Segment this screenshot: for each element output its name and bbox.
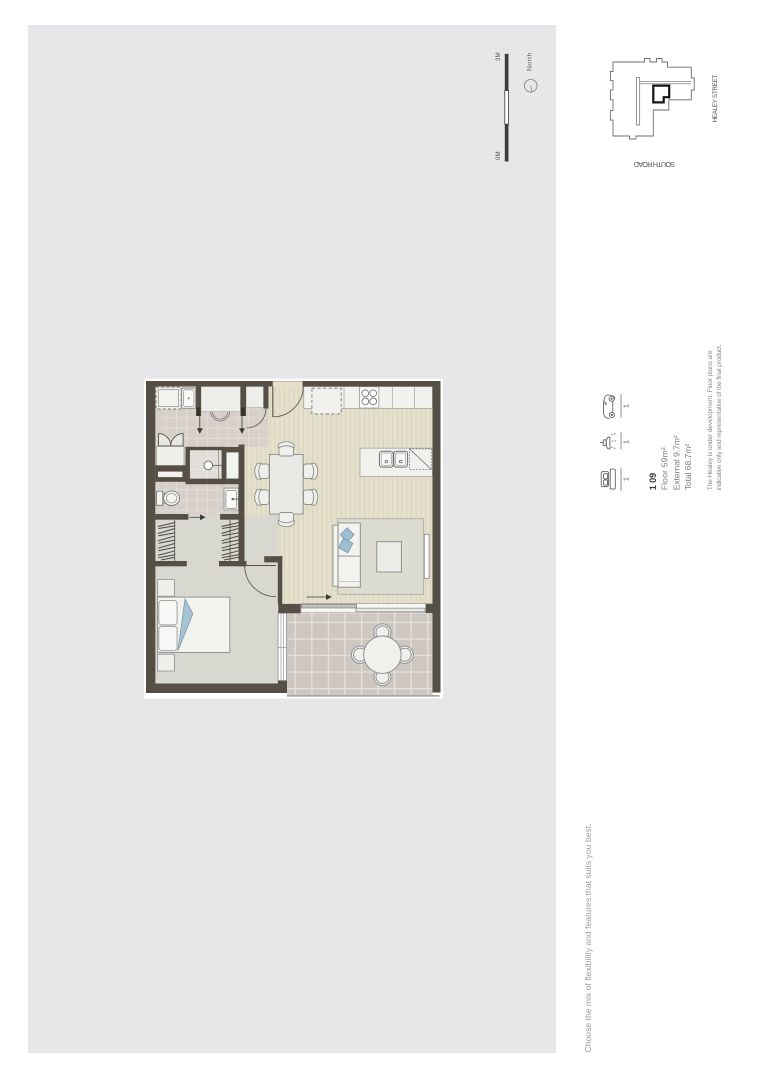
svg-text:North: North (527, 52, 534, 71)
svg-text:HEALEY STREET: HEALEY STREET (712, 74, 719, 123)
svg-text:Choose the mix of flexibility: Choose the mix of flexibility and featur… (583, 824, 593, 1053)
svg-text:Floor 59m²: Floor 59m² (660, 447, 670, 490)
svg-text:Total 68.7m²: Total 68.7m² (683, 444, 693, 491)
svg-text:indicative only and representa: indicative only and representative of th… (716, 344, 723, 490)
svg-text:3M: 3M (495, 52, 502, 61)
svg-text:1 09: 1 09 (648, 473, 658, 491)
svg-text:1: 1 (624, 440, 631, 444)
svg-text:SOUTH ROAD: SOUTH ROAD (633, 160, 675, 169)
svg-text:External 9.7m²: External 9.7m² (671, 435, 681, 490)
svg-text:0M: 0M (495, 151, 502, 160)
svg-text:The Healey is under developmen: The Healey is under development. Floor p… (707, 350, 714, 490)
svg-text:1: 1 (624, 477, 631, 481)
svg-text:1: 1 (624, 404, 631, 408)
